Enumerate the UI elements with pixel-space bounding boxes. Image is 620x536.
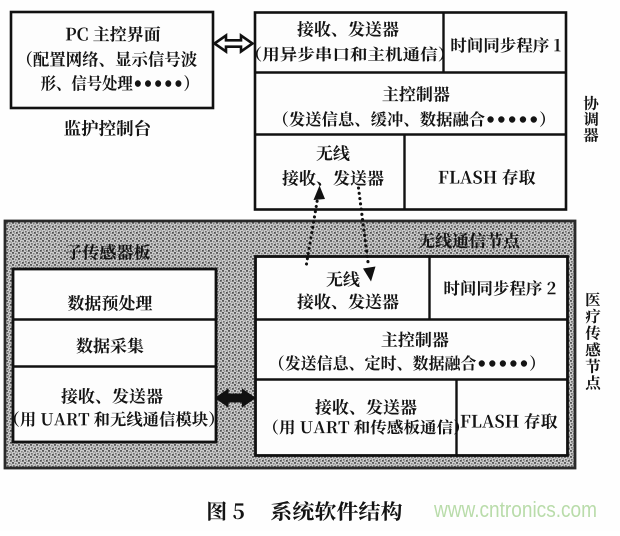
svg-text:www.cntronics.com: www.cntronics.com (433, 497, 597, 522)
